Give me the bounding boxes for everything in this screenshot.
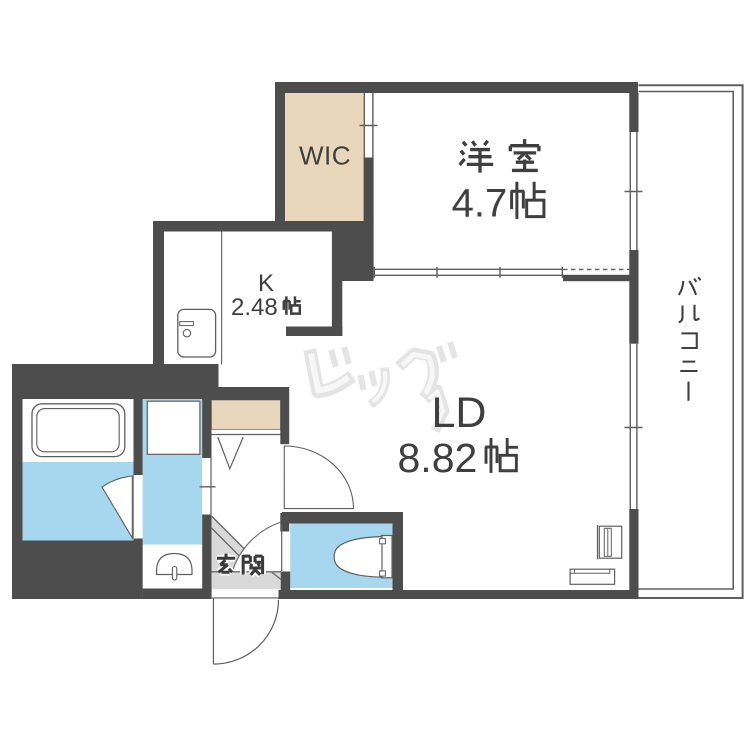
svg-text:4.7: 4.7 (452, 182, 508, 226)
svg-text:WIC: WIC (299, 141, 351, 171)
svg-text:8.82: 8.82 (398, 435, 478, 481)
svg-text:LD: LD (432, 389, 487, 437)
svg-text:2.48: 2.48 (231, 294, 278, 321)
